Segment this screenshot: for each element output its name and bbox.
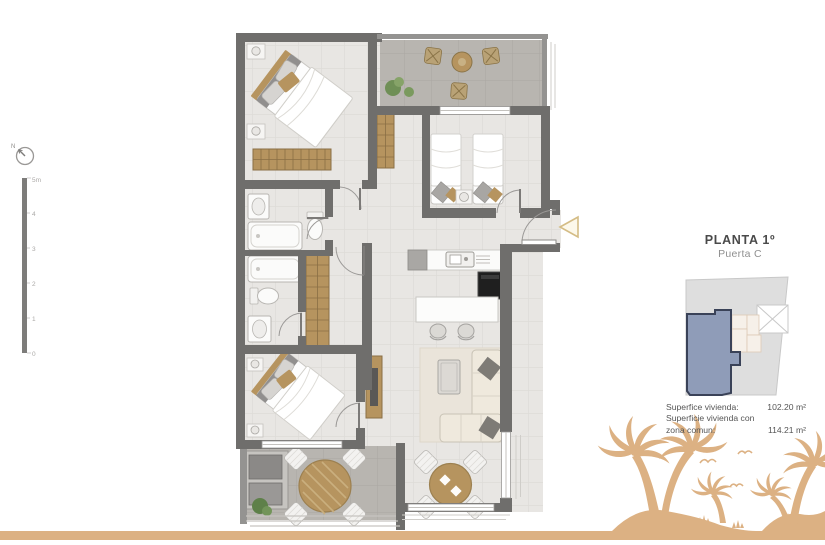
- palm-tree: [596, 415, 671, 516]
- single-bed: [473, 134, 503, 204]
- floor-plan: [236, 33, 578, 530]
- scale-label: 1: [32, 316, 36, 323]
- scale-label: 4: [32, 211, 36, 218]
- palm-tree: [781, 430, 825, 525]
- plan-title: PLANTA 1º: [675, 233, 805, 247]
- compass-label: N: [11, 144, 15, 150]
- wardrobe: [253, 149, 331, 170]
- terrace-table: [299, 460, 351, 512]
- area-table: Superfice vivienda: 102.20 m² Superficie…: [666, 402, 806, 436]
- hall-wardrobe: [377, 113, 394, 168]
- area-value: 114.21 m²: [768, 425, 806, 436]
- key-plan-stairwell: [757, 305, 788, 333]
- scale-label: 5m: [32, 177, 41, 184]
- key-plan-rooms: [732, 315, 761, 352]
- window-bedroom3: [262, 441, 342, 448]
- window-bedroom2-terrace: [440, 107, 510, 115]
- scale-bar: 5m 4 3 2 1 0: [22, 177, 41, 358]
- key-plan: [686, 277, 788, 395]
- scale-label: 3: [32, 246, 36, 253]
- palm-tree: [749, 472, 793, 526]
- area-row: Superficie vivienda con: [666, 413, 806, 424]
- area-row: Superfice vivienda: 102.20 m²: [666, 402, 806, 413]
- scale-label: 2: [32, 281, 36, 288]
- area-label: Superficie vivienda con: [666, 413, 754, 424]
- footer-band: [0, 531, 825, 540]
- scale-label: 0: [32, 351, 36, 358]
- plan-subtitle: Puerta C: [675, 248, 805, 260]
- area-row: zona comun: 114.21 m²: [666, 425, 806, 436]
- area-label: Superfice vivienda:: [666, 402, 739, 413]
- kitchen-island: [416, 297, 498, 322]
- corridor-wardrobe: [306, 254, 329, 346]
- entrance-arrow-icon: [560, 217, 578, 237]
- area-label: zona comun:: [666, 425, 715, 436]
- area-value: 102.20 m²: [767, 402, 806, 413]
- palm-tree: [690, 471, 734, 523]
- compass-icon: N: [11, 144, 34, 165]
- page-graphic: 5m 4 3 2 1 0 N: [0, 0, 825, 540]
